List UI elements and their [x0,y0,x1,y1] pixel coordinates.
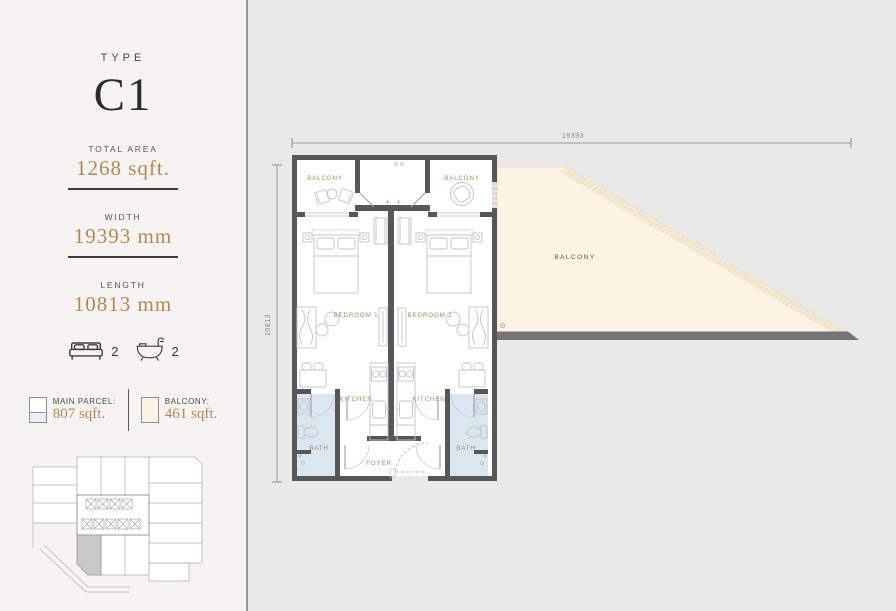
dimension-length: 10813 [265,165,282,482]
dimension-length-label: 10813 [265,314,272,336]
large-balcony-area: BALCONY [490,167,859,340]
main-parcel-swatch [29,397,47,423]
bath-left-label: BATH [309,445,329,452]
balcony-value: 461 sqft. [165,406,218,423]
bath-right-label: BATH [456,445,476,452]
total-area-value: 1268 sqft. [0,156,246,181]
balcony-swatch [141,397,159,423]
legend-balcony: BALCONY: 461 sqft. [141,397,218,423]
divider-rule [68,256,178,258]
divider-rule [68,188,178,190]
type-label: TYPE [0,52,246,64]
spec-length: LENGTH 10813 mm [0,280,246,317]
key-plan [0,453,246,610]
balcony-right-label: BALCONY [444,175,480,182]
bathroom-count: 2 [135,335,179,367]
floor-plan: 19393 10813 BALCONY [262,118,872,508]
key-plan-highlighted-unit [77,535,101,575]
total-area-label: TOTAL AREA [0,144,246,154]
width-value: 19393 mm [0,224,246,249]
spec-total-area: TOTAL AREA 1268 sqft. [0,144,246,190]
width-label: WIDTH [0,212,246,222]
main-parcel-label: MAIN PARCEL: [53,397,116,406]
bathtub-icon [135,335,166,367]
kitchen-right-label: KITCHEN [412,396,445,403]
legend-main-parcel: MAIN PARCEL: 807 sqft. [29,397,116,423]
legend-divider [128,389,129,431]
main-parcel-value: 807 sqft. [53,406,116,423]
unit-type-name: C1 [0,68,246,122]
balcony-outer-wall [490,332,859,341]
bathroom-count-value: 2 [172,344,179,359]
length-label: LENGTH [0,280,246,290]
balcony-label: BALCONY: [165,397,218,406]
bedroom-count-value: 2 [111,344,118,359]
features-row: 2 2 [0,335,246,367]
kitchen-left-label: KITCHEN [339,396,372,403]
foyer-label: FOYER [366,460,392,467]
length-value: 10813 mm [0,292,246,317]
spec-sidebar: TYPE C1 TOTAL AREA 1268 sqft. WIDTH 1939… [0,0,248,611]
floorplan-page: TYPE C1 TOTAL AREA 1268 sqft. WIDTH 1939… [0,0,896,611]
dimension-width: 19393 [292,133,851,148]
bedroom-1-label: BEDROOM 1 [334,312,379,319]
area-legend: MAIN PARCEL: 807 sqft. BALCONY: 461 sqft… [0,389,246,431]
bedroom-count: 2 [67,337,118,366]
balcony-left-label: BALCONY [307,175,343,182]
dimension-width-label: 19393 [562,133,584,140]
bedroom-2-label: BEDROOM 2 [408,312,453,319]
bed-icon [67,337,105,366]
spec-width: WIDTH 19393 mm [0,212,246,258]
large-balcony-label: BALCONY [554,254,595,261]
